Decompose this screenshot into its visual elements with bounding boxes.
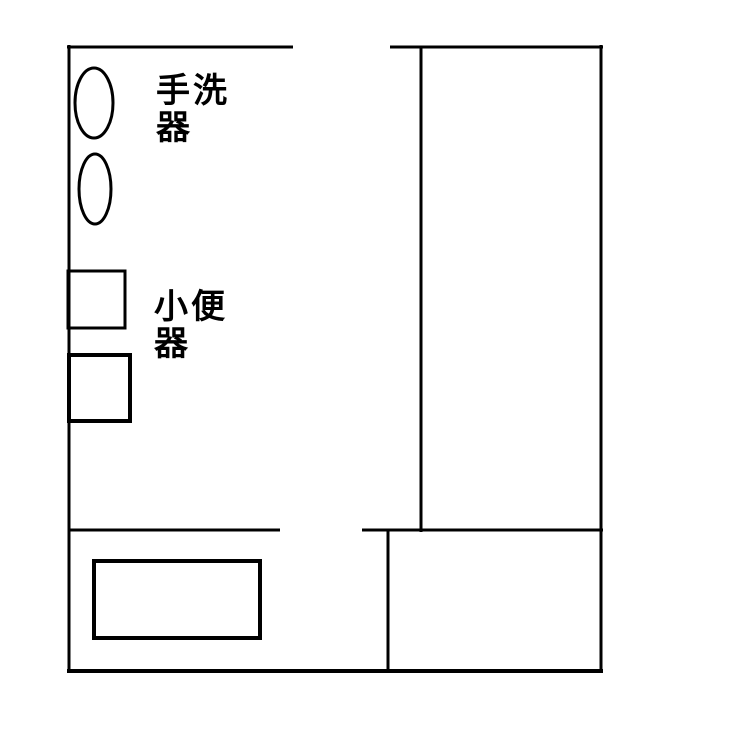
- wash-basin-1: [75, 68, 113, 138]
- urinal-2: [69, 355, 130, 421]
- urinal-label: 小便器: [154, 287, 228, 364]
- bottom-left-fixture: [94, 561, 260, 638]
- floorplan-svg: 手洗器小便器: [0, 0, 730, 734]
- wash-basin-2: [79, 154, 111, 224]
- floorplan: 手洗器小便器: [0, 0, 730, 734]
- urinal-1: [68, 271, 125, 328]
- hand-wash-basin-label: 手洗器: [156, 71, 230, 148]
